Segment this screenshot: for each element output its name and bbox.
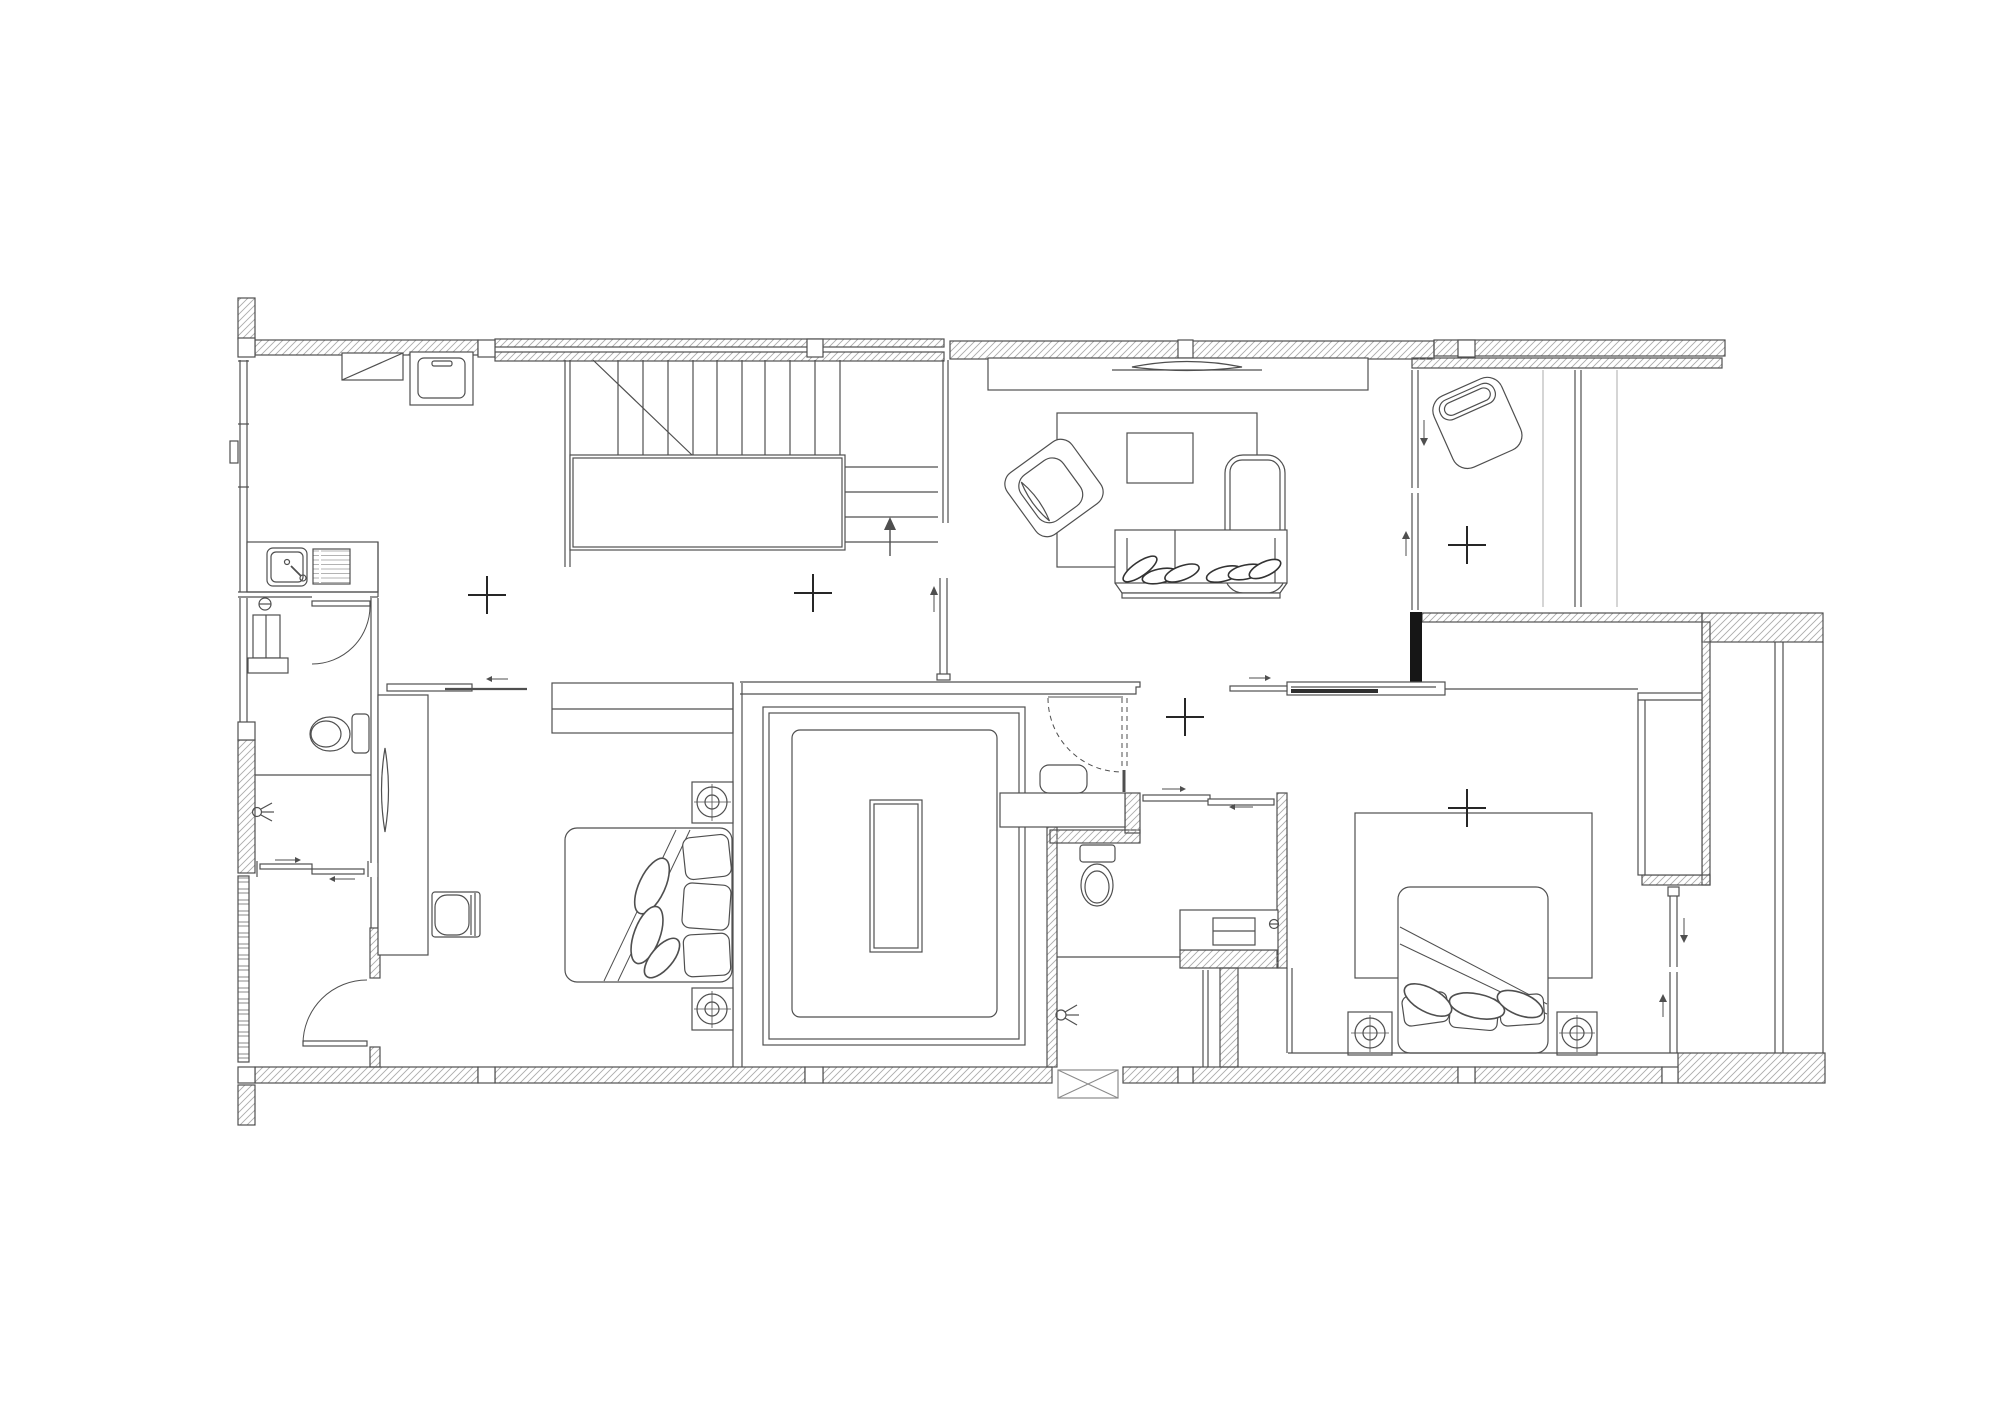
bed1-pillow	[683, 933, 731, 977]
stair-landing	[570, 455, 845, 550]
pier-top-left	[238, 298, 255, 339]
wall-vanity-east	[1125, 793, 1140, 833]
coffee-table	[1127, 433, 1193, 483]
wall-west-bath	[238, 740, 255, 873]
wall-bottom-2	[495, 1067, 805, 1083]
column	[238, 338, 255, 357]
column	[478, 340, 495, 357]
block-northeast	[1702, 613, 1823, 642]
bath1-shelf	[248, 658, 288, 673]
wc-slider-panel	[1143, 795, 1210, 801]
closet2	[1638, 693, 1702, 875]
wc-slider-panel	[1208, 799, 1274, 805]
wall-top-stair-outer	[495, 339, 944, 347]
downspout	[230, 441, 238, 463]
column	[1178, 340, 1193, 358]
wall-top-stair-inner	[495, 352, 944, 361]
toilet2-tank	[1080, 845, 1115, 862]
column	[238, 1067, 255, 1083]
wall-wc-stub	[1220, 968, 1238, 1067]
column	[478, 1067, 495, 1083]
floor-plan-page	[0, 0, 2000, 1413]
wall-top-right	[1434, 340, 1725, 356]
wall-under-cabinet	[1180, 950, 1278, 968]
wall-bottom-3	[823, 1067, 1052, 1083]
block-southeast	[1678, 1053, 1825, 1083]
wall-balcony-south	[1422, 613, 1702, 622]
wall-east-side	[1702, 622, 1710, 885]
pier-bottom-left	[238, 1085, 255, 1125]
sink-drainboard	[313, 549, 350, 584]
wardrobe1	[552, 683, 733, 733]
toilet1-tank	[352, 714, 369, 753]
wall-bottom-5	[1193, 1067, 1458, 1083]
bed1-pillow	[681, 882, 731, 930]
bedroom2-slider-panel2	[1230, 686, 1287, 691]
column-west-mid	[238, 722, 255, 740]
wall-closet2-south	[1642, 875, 1710, 885]
bath1-door-leaf	[312, 601, 370, 606]
closet-island	[870, 800, 922, 952]
wall-balcony-north	[1412, 358, 1722, 368]
vanity-basin	[1040, 765, 1087, 793]
toilet1-bowl	[310, 717, 350, 751]
column	[807, 339, 823, 357]
bed1-pillow	[682, 834, 732, 881]
stair-wall-foot	[937, 674, 950, 680]
bedroom2-slider-track	[1287, 682, 1445, 695]
column	[1662, 1067, 1678, 1083]
laundry-door-leaf	[303, 1041, 367, 1046]
column	[1178, 1067, 1193, 1083]
vanity-counter	[1000, 793, 1125, 827]
sofa-base-lip	[1122, 593, 1280, 598]
column	[1458, 340, 1475, 357]
column	[805, 1067, 823, 1083]
column	[1458, 1067, 1475, 1083]
pier-black	[1410, 612, 1422, 683]
wc-cabinet	[1180, 910, 1278, 950]
wall-bottom-1	[255, 1067, 478, 1083]
bath1-slider-panel	[312, 869, 364, 874]
bedroom2-slider-panel	[1291, 689, 1378, 693]
wall-bottom-6	[1475, 1067, 1662, 1083]
desk-chair	[432, 892, 480, 937]
wall-bath1-east-lower	[370, 1047, 380, 1067]
louver-wall	[238, 876, 249, 1062]
wall-bottom-4	[1123, 1067, 1178, 1083]
side-slider-cap	[1668, 887, 1679, 896]
floor-plan-canvas	[0, 0, 2000, 1413]
toilet2-bowl	[1081, 864, 1113, 906]
wall-wc-west	[1047, 827, 1057, 1067]
bath1-slider-panel	[260, 864, 312, 869]
